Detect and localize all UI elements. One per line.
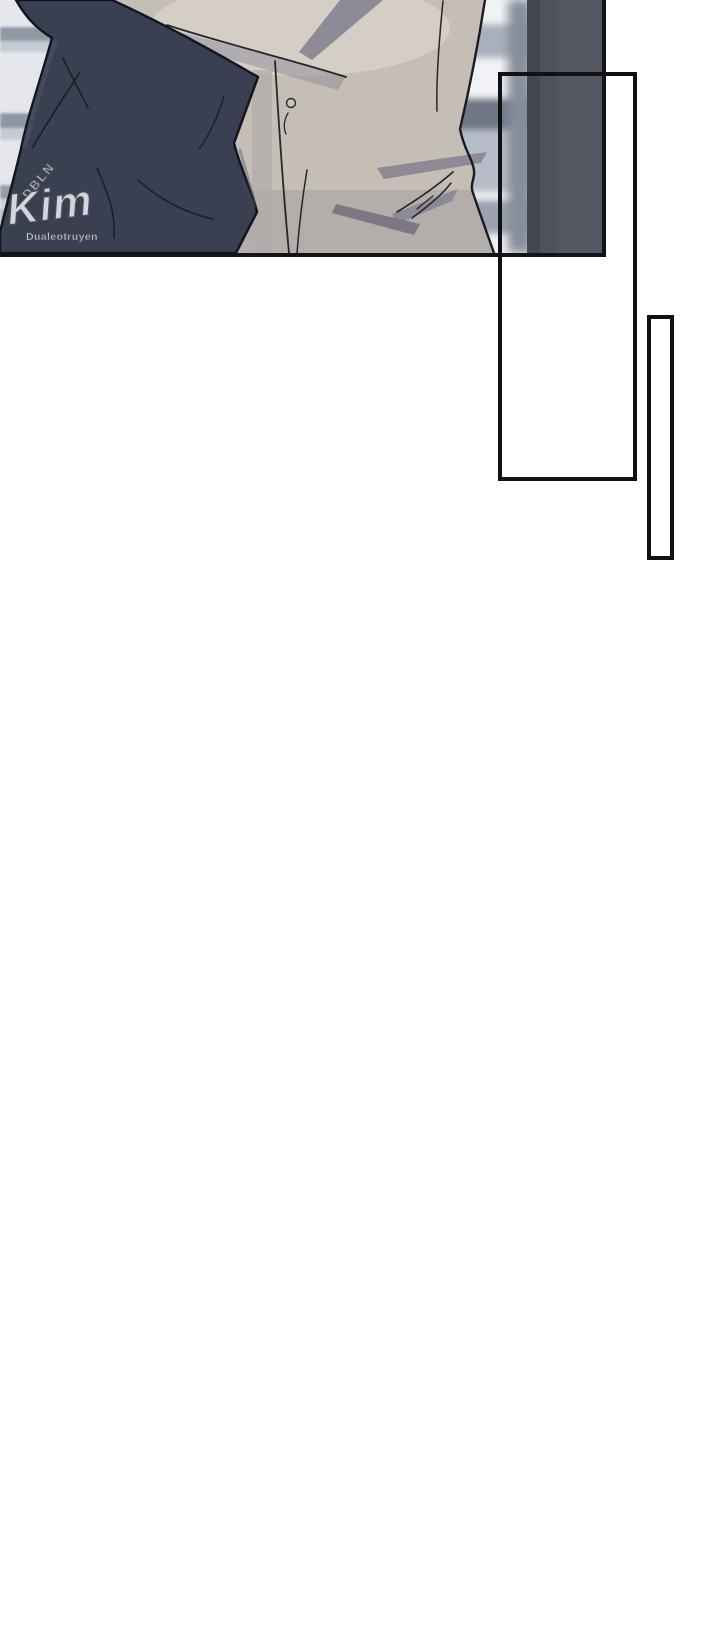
empty-panel-frame-narrow <box>647 315 674 560</box>
page-blank-area <box>0 600 720 1647</box>
shirt-button <box>287 99 296 108</box>
comic-page: DBLN Kim Dualeotruyen <box>0 0 720 1647</box>
empty-panel-frame-large <box>498 72 637 481</box>
